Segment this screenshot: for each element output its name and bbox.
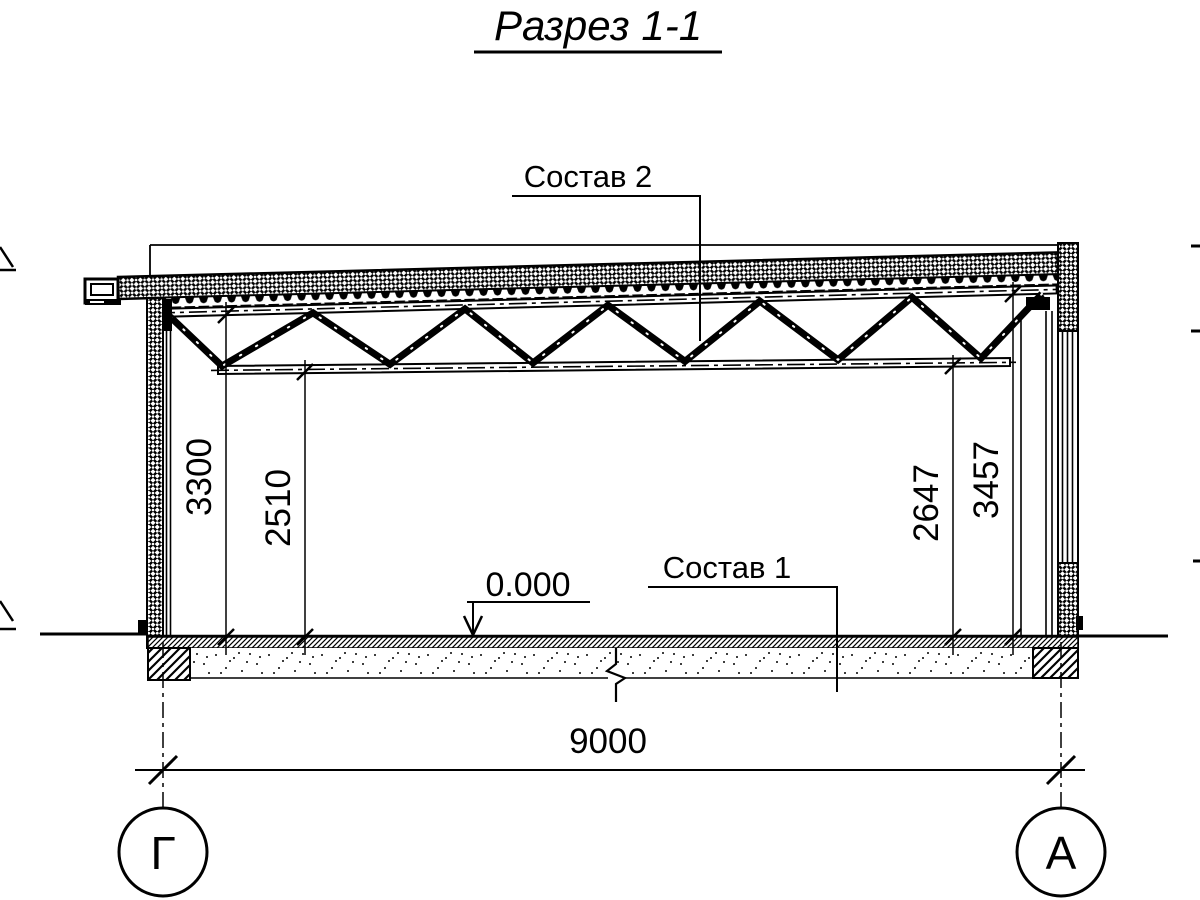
axis-letter-left: Г [151, 827, 176, 879]
floor-composition-label: Состав 1 [663, 550, 792, 585]
left-wall-panel [147, 298, 163, 648]
dim-text-3457: 3457 [967, 441, 1006, 519]
dim-text-3300: 3300 [180, 438, 219, 516]
section-drawing: Разрез 1-1 [0, 0, 1200, 900]
span-dim-text: 9000 [569, 722, 647, 761]
right-wall-plinth-nub [1076, 616, 1083, 630]
left-foundation [148, 648, 190, 680]
dim-text-2647: 2647 [907, 464, 946, 542]
level-mark-text: 0.000 [485, 566, 570, 604]
right-foundation [1033, 648, 1078, 678]
floor-screed-layer [148, 637, 1078, 648]
truss-right-bearing [1026, 297, 1050, 310]
roof-composition-label: Состав 2 [524, 159, 653, 194]
eave-detail [85, 279, 121, 305]
drawing-title: Разрез 1-1 [494, 2, 702, 49]
right-parapet-panel [1058, 243, 1078, 331]
axis-letter-right: А [1046, 827, 1077, 879]
drawing-sheet: Разрез 1-1 [0, 0, 1200, 900]
dim-text-2510: 2510 [259, 469, 298, 547]
